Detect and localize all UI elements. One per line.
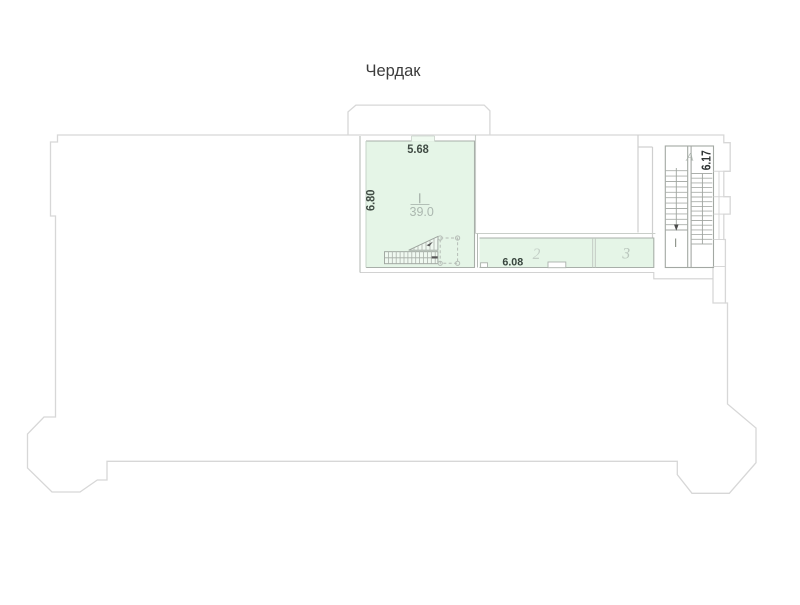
svg-text:39.0: 39.0 xyxy=(410,205,434,219)
svg-text:6.80: 6.80 xyxy=(366,190,378,212)
svg-text:2: 2 xyxy=(533,246,541,263)
svg-text:6.08: 6.08 xyxy=(502,256,523,268)
svg-text:5.68: 5.68 xyxy=(407,144,429,156)
svg-text:6.17: 6.17 xyxy=(700,150,714,170)
svg-text:3: 3 xyxy=(621,246,630,263)
svg-text:Чердак: Чердак xyxy=(366,62,422,80)
svg-text:А: А xyxy=(685,149,694,163)
